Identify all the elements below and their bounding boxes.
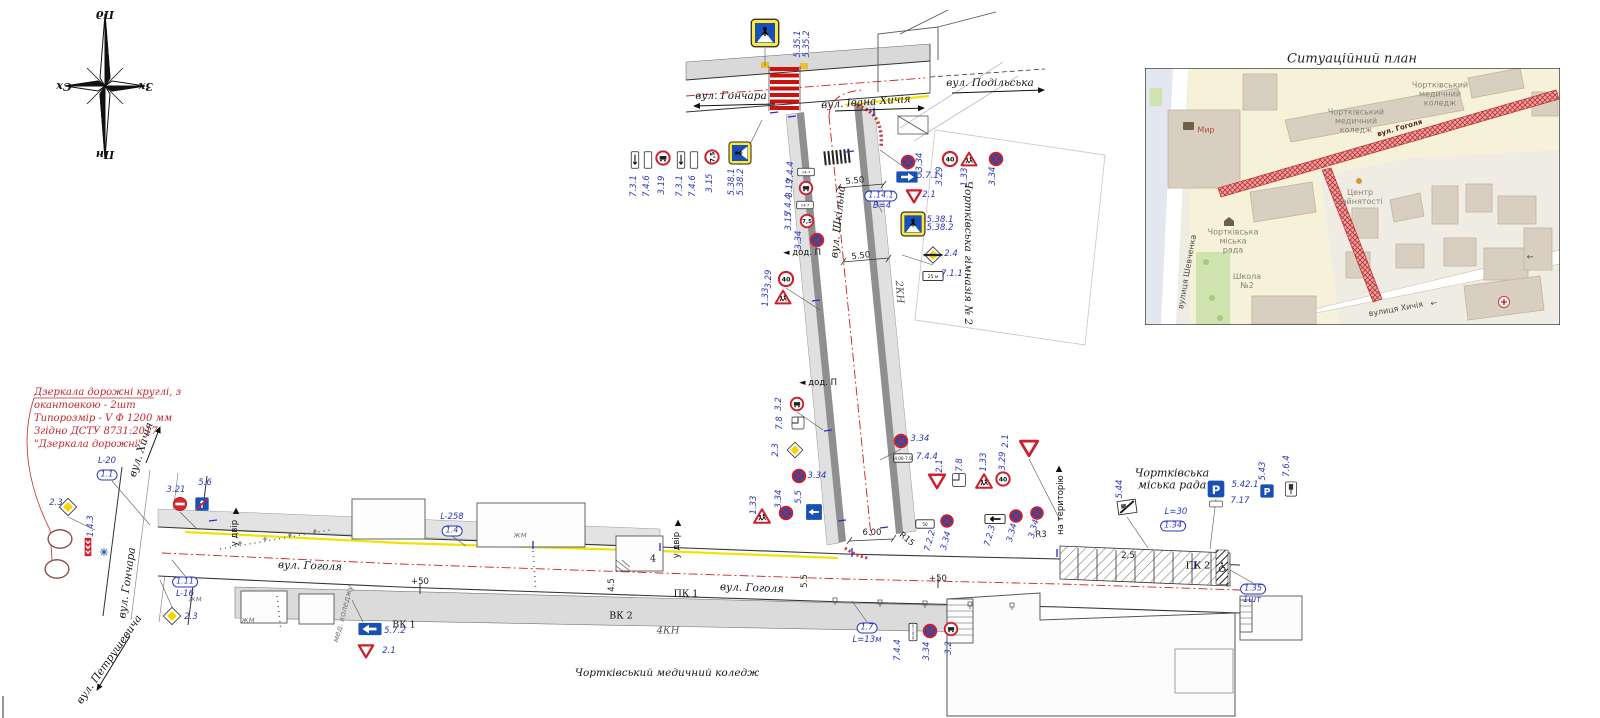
mirrors-note: Дзеркала дорожні круглі, з окантовкою - … (34, 386, 190, 451)
traffic-plan-drawing: 7,525 м4014-714-77,54014.00-7.004050PP14… (0, 0, 1600, 718)
plan-drawing-canvas (0, 0, 1600, 718)
compass-rose-icon (65, 14, 145, 158)
note-line: "Дзеркала дорожні" (34, 438, 190, 451)
road-shkilna (786, 90, 916, 545)
cinema-icon (1183, 122, 1194, 130)
note-line: Типорозмір - V Ф 1200 мм (34, 412, 190, 425)
employment-center-icon (1356, 178, 1362, 184)
parking-bay (1060, 546, 1230, 586)
note-line: Згідно ДСТУ 8731:2017 (34, 425, 190, 438)
note-line: Дзеркала дорожні круглі, з (34, 386, 190, 399)
inset-map (1145, 68, 1560, 330)
note-line: окантовкою - 2шт (34, 399, 190, 412)
road-khychiia (686, 44, 1045, 112)
